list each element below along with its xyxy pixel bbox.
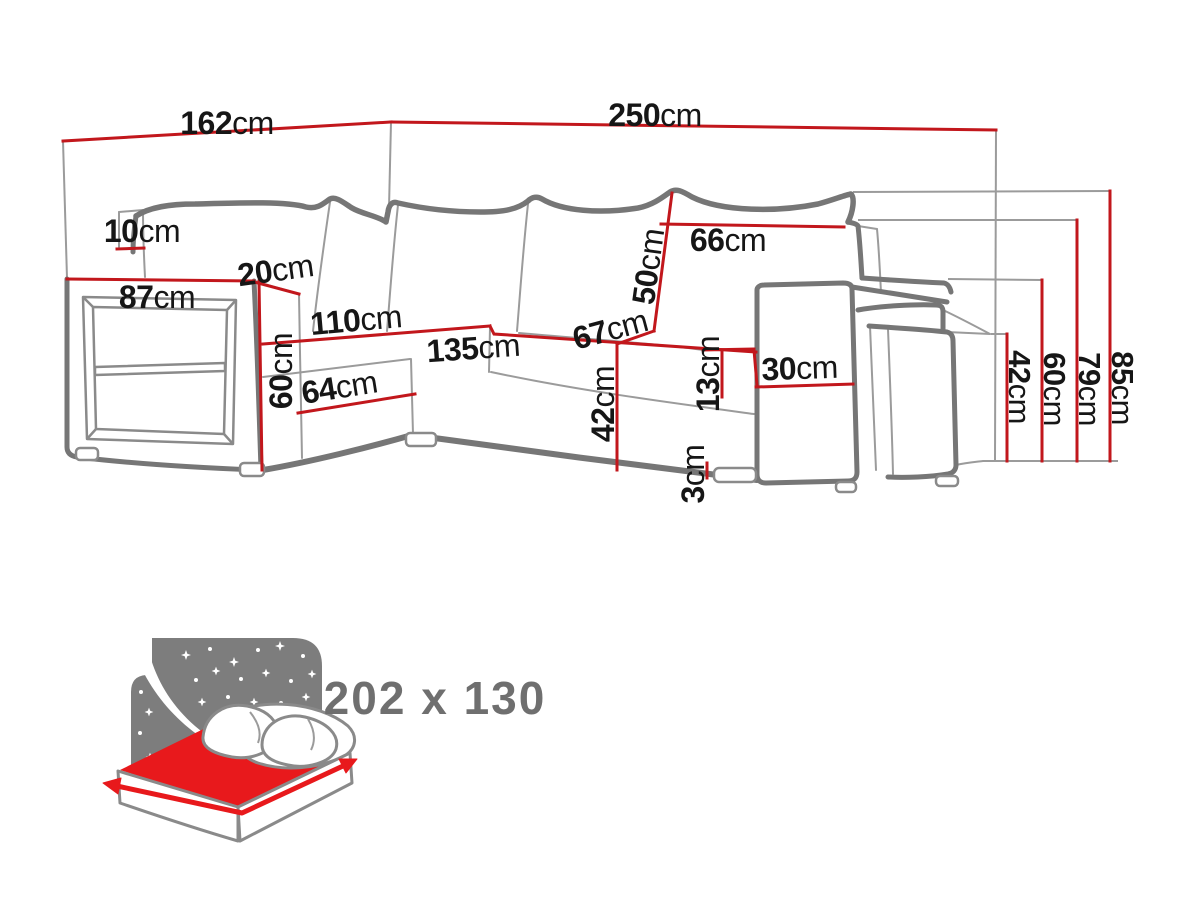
dim-label-87: 87cm [119, 279, 195, 315]
dim-label-3: 3cm [675, 445, 711, 504]
sleeping-size-label: 202 x 130 [324, 672, 547, 724]
dim-label-13: 13cm [690, 336, 726, 412]
dim-label-20: 20cm [235, 247, 316, 293]
dim-label-42-right: 42cm [1002, 350, 1037, 424]
dim-label-67: 67cm [569, 302, 652, 357]
dim-label-79: 79cm [1072, 352, 1107, 426]
dim-label-162: 162cm [180, 105, 274, 141]
dim-label-10: 10cm [104, 213, 180, 249]
dim-label-60-left: 60cm [263, 333, 299, 409]
dim-label-60-right: 60cm [1037, 352, 1072, 426]
armrest-shelf [83, 297, 236, 444]
dim-label-42-seat: 42cm [585, 366, 621, 442]
sofa-dimension-diagram: 162cm 250cm 10cm 20cm 87cm 66cm 50cm 110… [0, 0, 1200, 899]
dim-label-85: 85cm [1105, 351, 1140, 425]
dim-label-30: 30cm [761, 349, 838, 388]
diagram-canvas: 162cm 250cm 10cm 20cm 87cm 66cm 50cm 110… [0, 0, 1200, 899]
dim-label-250: 250cm [608, 97, 702, 133]
dim-label-66: 66cm [690, 222, 766, 258]
dim-label-50: 50cm [625, 226, 671, 307]
dim-label-135: 135cm [425, 327, 521, 369]
sleeping-area-icon: 202 x 130 [103, 628, 546, 841]
